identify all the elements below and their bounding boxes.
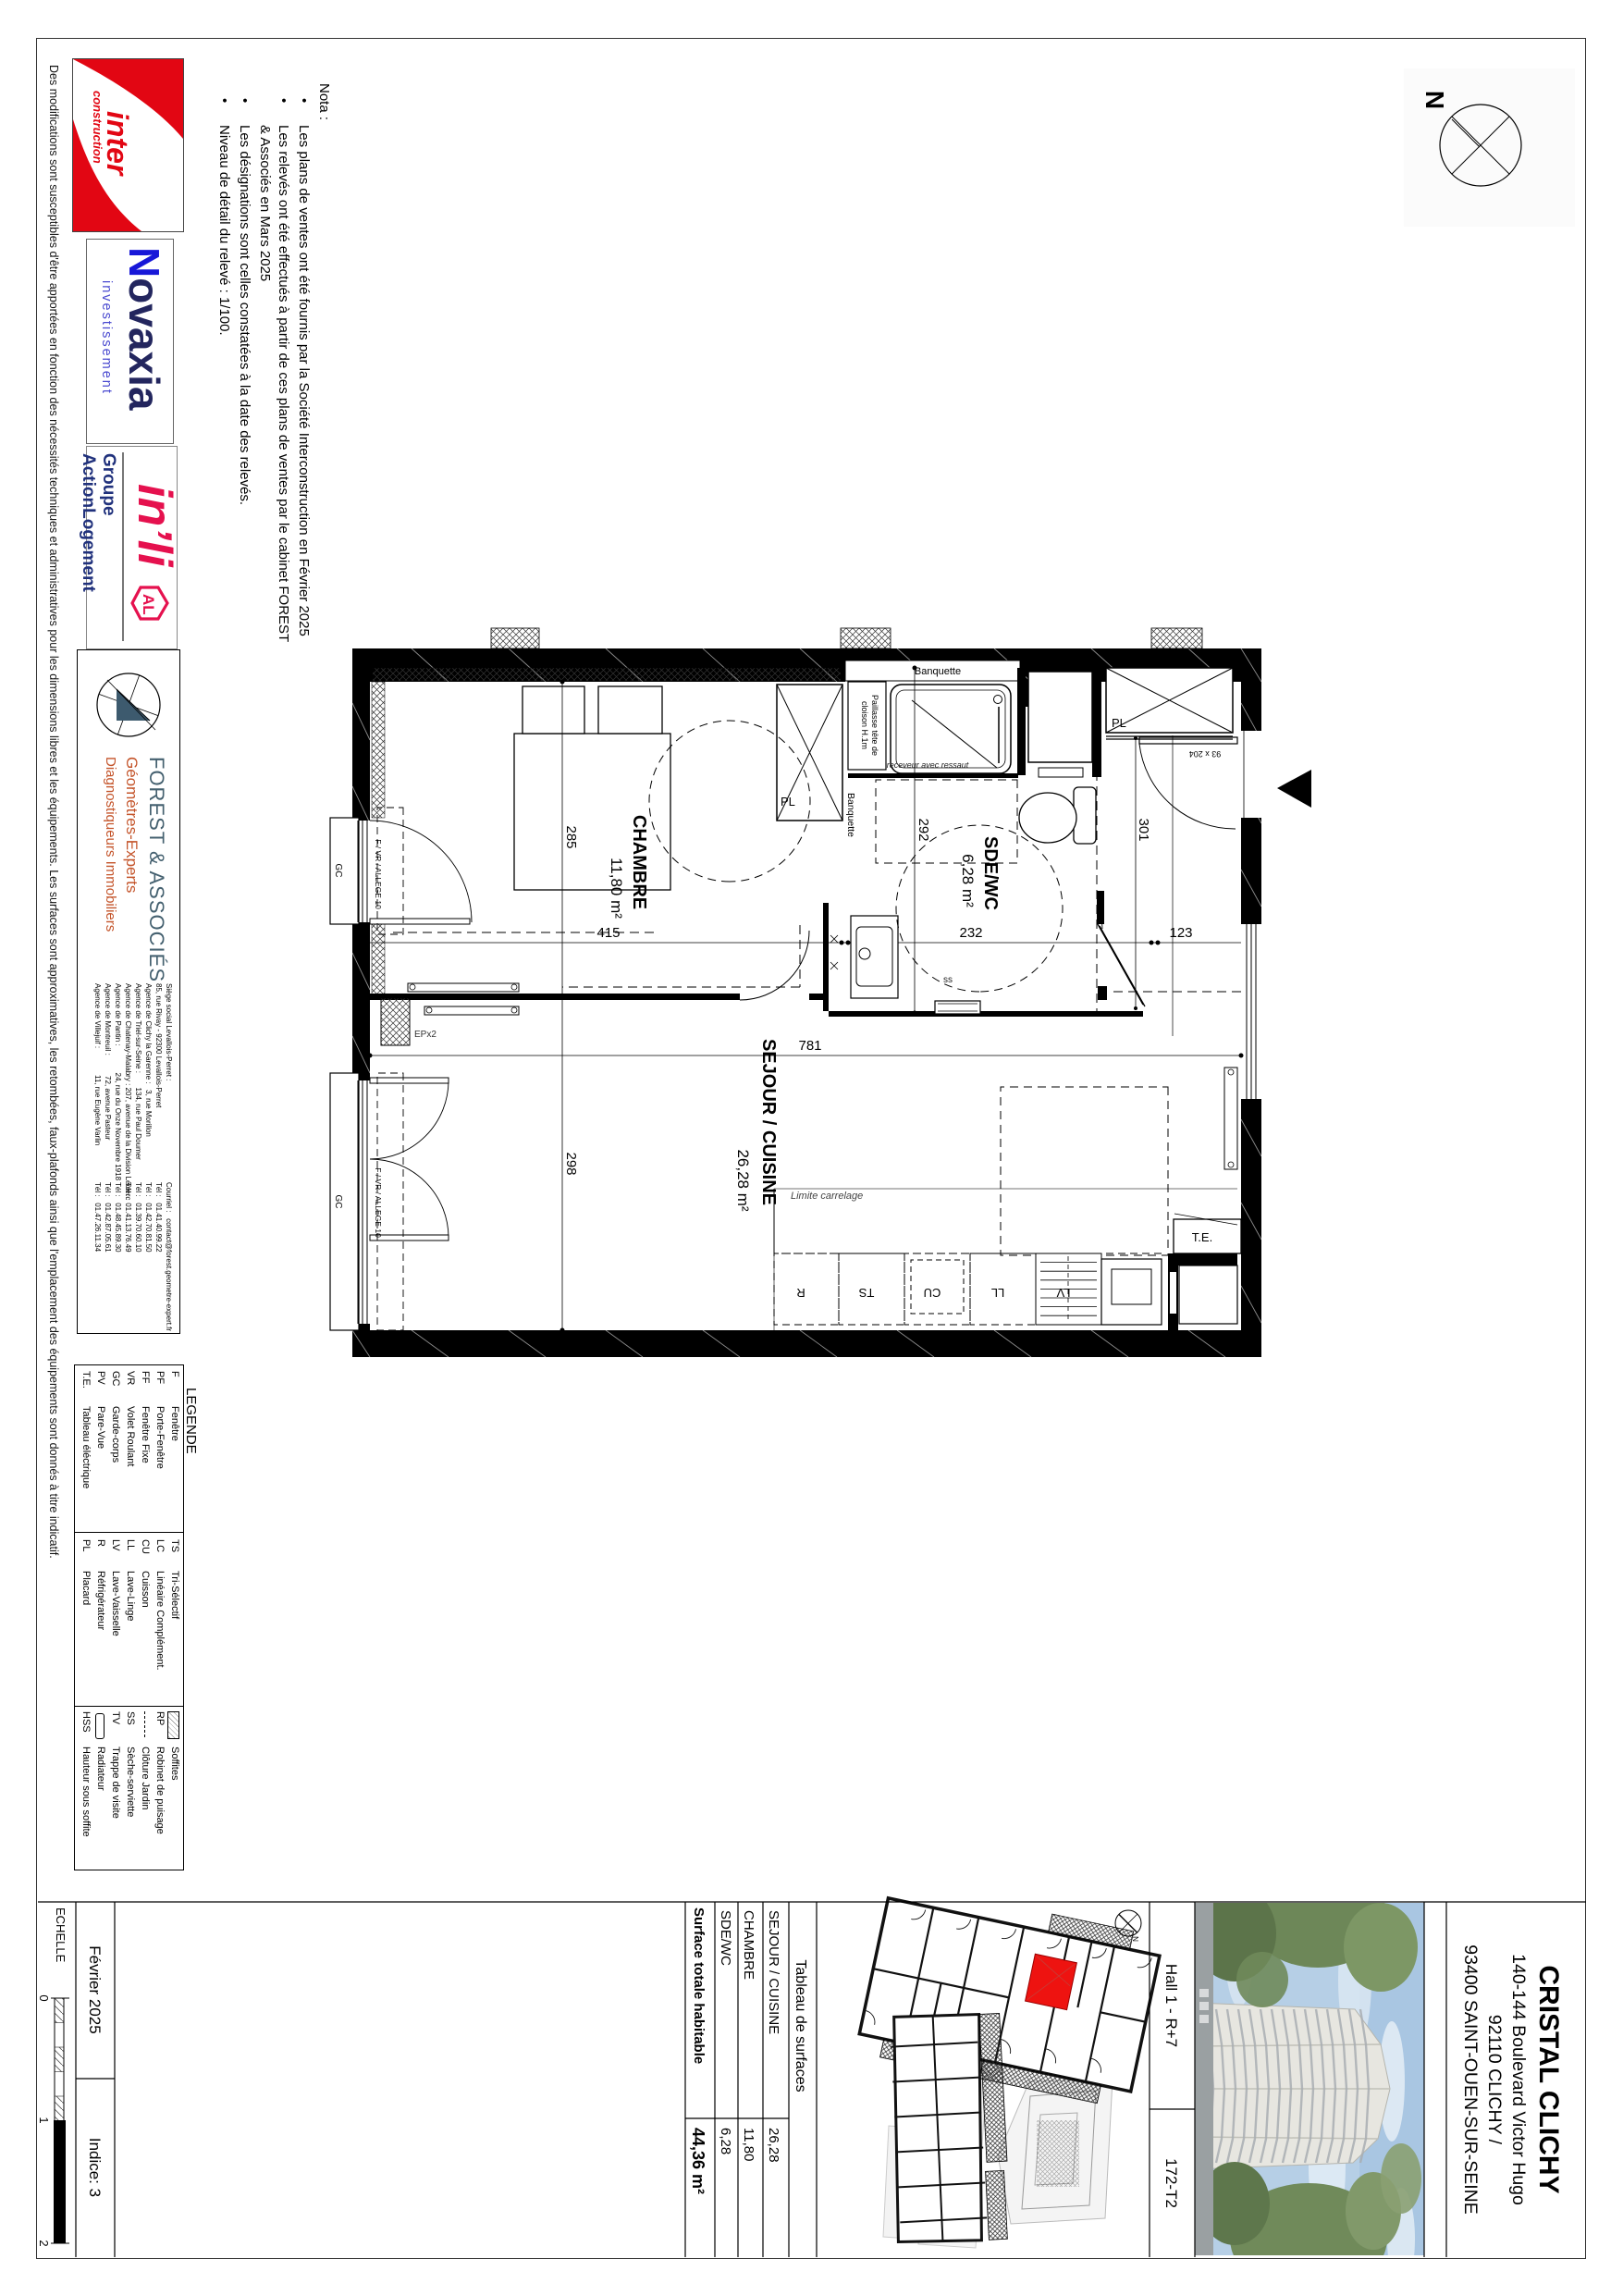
- svg-text:Tableau de surfaces: Tableau de surfaces: [793, 1959, 808, 2092]
- svg-text:F / VR / ALLEGE 10: F / VR / ALLEGE 10: [374, 839, 383, 909]
- svg-text:SDE/WC: SDE/WC: [980, 836, 1001, 910]
- svg-text:construction: construction: [91, 91, 105, 164]
- svg-text:123: 123: [1169, 925, 1192, 941]
- svg-text:298: 298: [563, 1152, 579, 1175]
- svg-text:ECHELLE: ECHELLE: [54, 1907, 68, 1963]
- svg-text:0: 0: [37, 1994, 51, 2001]
- svg-text:inter: inter: [101, 111, 134, 177]
- svg-text:11,80: 11,80: [741, 2128, 756, 2161]
- svg-text:EPx2: EPx2: [414, 1030, 436, 1040]
- svg-text:cloison H.1m: cloison H.1m: [860, 701, 869, 749]
- svg-text:SDE/WC: SDE/WC: [718, 1910, 733, 1966]
- svg-text:6,28 m²: 6,28 m²: [959, 854, 977, 907]
- svg-text:GC: GC: [333, 864, 343, 878]
- svg-text:CHAMBRE: CHAMBRE: [629, 815, 649, 909]
- svg-text:301: 301: [1136, 818, 1151, 841]
- svg-text:172-T2: 172-T2: [1162, 2158, 1180, 2208]
- svg-text:2: 2: [37, 2240, 51, 2246]
- svg-text:CU: CU: [924, 1286, 941, 1300]
- svg-text:N: N: [1131, 1936, 1139, 1942]
- svg-text:Hall 1 - R+7: Hall 1 - R+7: [1162, 1964, 1180, 2047]
- svg-text:CHAMBRE: CHAMBRE: [741, 1910, 756, 1980]
- svg-text:6,28: 6,28: [718, 2128, 733, 2154]
- svg-text:Banquette: Banquette: [845, 793, 856, 837]
- svg-text:AL: AL: [140, 594, 157, 615]
- svg-text:PL: PL: [1112, 716, 1126, 730]
- svg-text:92110 CLICHY /: 92110 CLICHY /: [1484, 2015, 1505, 2145]
- svg-text:Banquette: Banquette: [915, 666, 961, 677]
- svg-text:N: N: [1420, 91, 1449, 109]
- svg-text:232: 232: [959, 925, 982, 941]
- svg-text:26,28: 26,28: [766, 2128, 781, 2163]
- svg-text:Février 2025: Février 2025: [86, 1945, 104, 2033]
- svg-text:SEJOUR / CUISINE: SEJOUR / CUISINE: [758, 1039, 779, 1205]
- svg-text:781: 781: [798, 1038, 821, 1054]
- svg-text:GC: GC: [333, 1195, 343, 1209]
- svg-text:Limite carrelage: Limite carrelage: [791, 1191, 863, 1202]
- svg-text:receveur avec ressaut: receveur avec ressaut: [887, 760, 969, 770]
- svg-text:11,80 m²: 11,80 m²: [608, 858, 625, 919]
- svg-text:CRISTAL CLICHY: CRISTAL CLICHY: [1533, 1965, 1564, 2193]
- svg-text:Surface totale habitable: Surface totale habitable: [691, 1907, 707, 2064]
- svg-text:R: R: [796, 1286, 805, 1300]
- svg-text:F / VR / ALLEGE 10: F / VR / ALLEGE 10: [374, 1167, 383, 1238]
- svg-text:1: 1: [37, 2117, 51, 2123]
- svg-text:285: 285: [563, 825, 579, 848]
- svg-text:26,28 m²: 26,28 m²: [734, 1149, 752, 1211]
- svg-text:LV: LV: [1056, 1286, 1070, 1300]
- svg-text:140-144 Boulevard Victor Hugo: 140-144 Boulevard Victor Hugo: [1508, 1954, 1529, 2205]
- svg-text:TS: TS: [858, 1286, 874, 1300]
- svg-text:PL: PL: [781, 795, 795, 809]
- svg-text:93 x 204: 93 x 204: [1189, 749, 1222, 759]
- svg-text:Indice: 3: Indice: 3: [86, 2138, 104, 2197]
- svg-text:Paillasse tête de: Paillasse tête de: [870, 695, 879, 756]
- svg-text:44,36 m²: 44,36 m²: [689, 2128, 707, 2194]
- svg-text:LL: LL: [991, 1286, 1004, 1300]
- svg-text:292: 292: [916, 818, 931, 841]
- svg-text:93400 SAINT-OUEN-SUR-SEINE: 93400 SAINT-OUEN-SUR-SEINE: [1460, 1944, 1481, 2215]
- svg-text:T.E.: T.E.: [1192, 1230, 1212, 1244]
- svg-text:SEJOUR / CUISINE: SEJOUR / CUISINE: [766, 1910, 781, 2034]
